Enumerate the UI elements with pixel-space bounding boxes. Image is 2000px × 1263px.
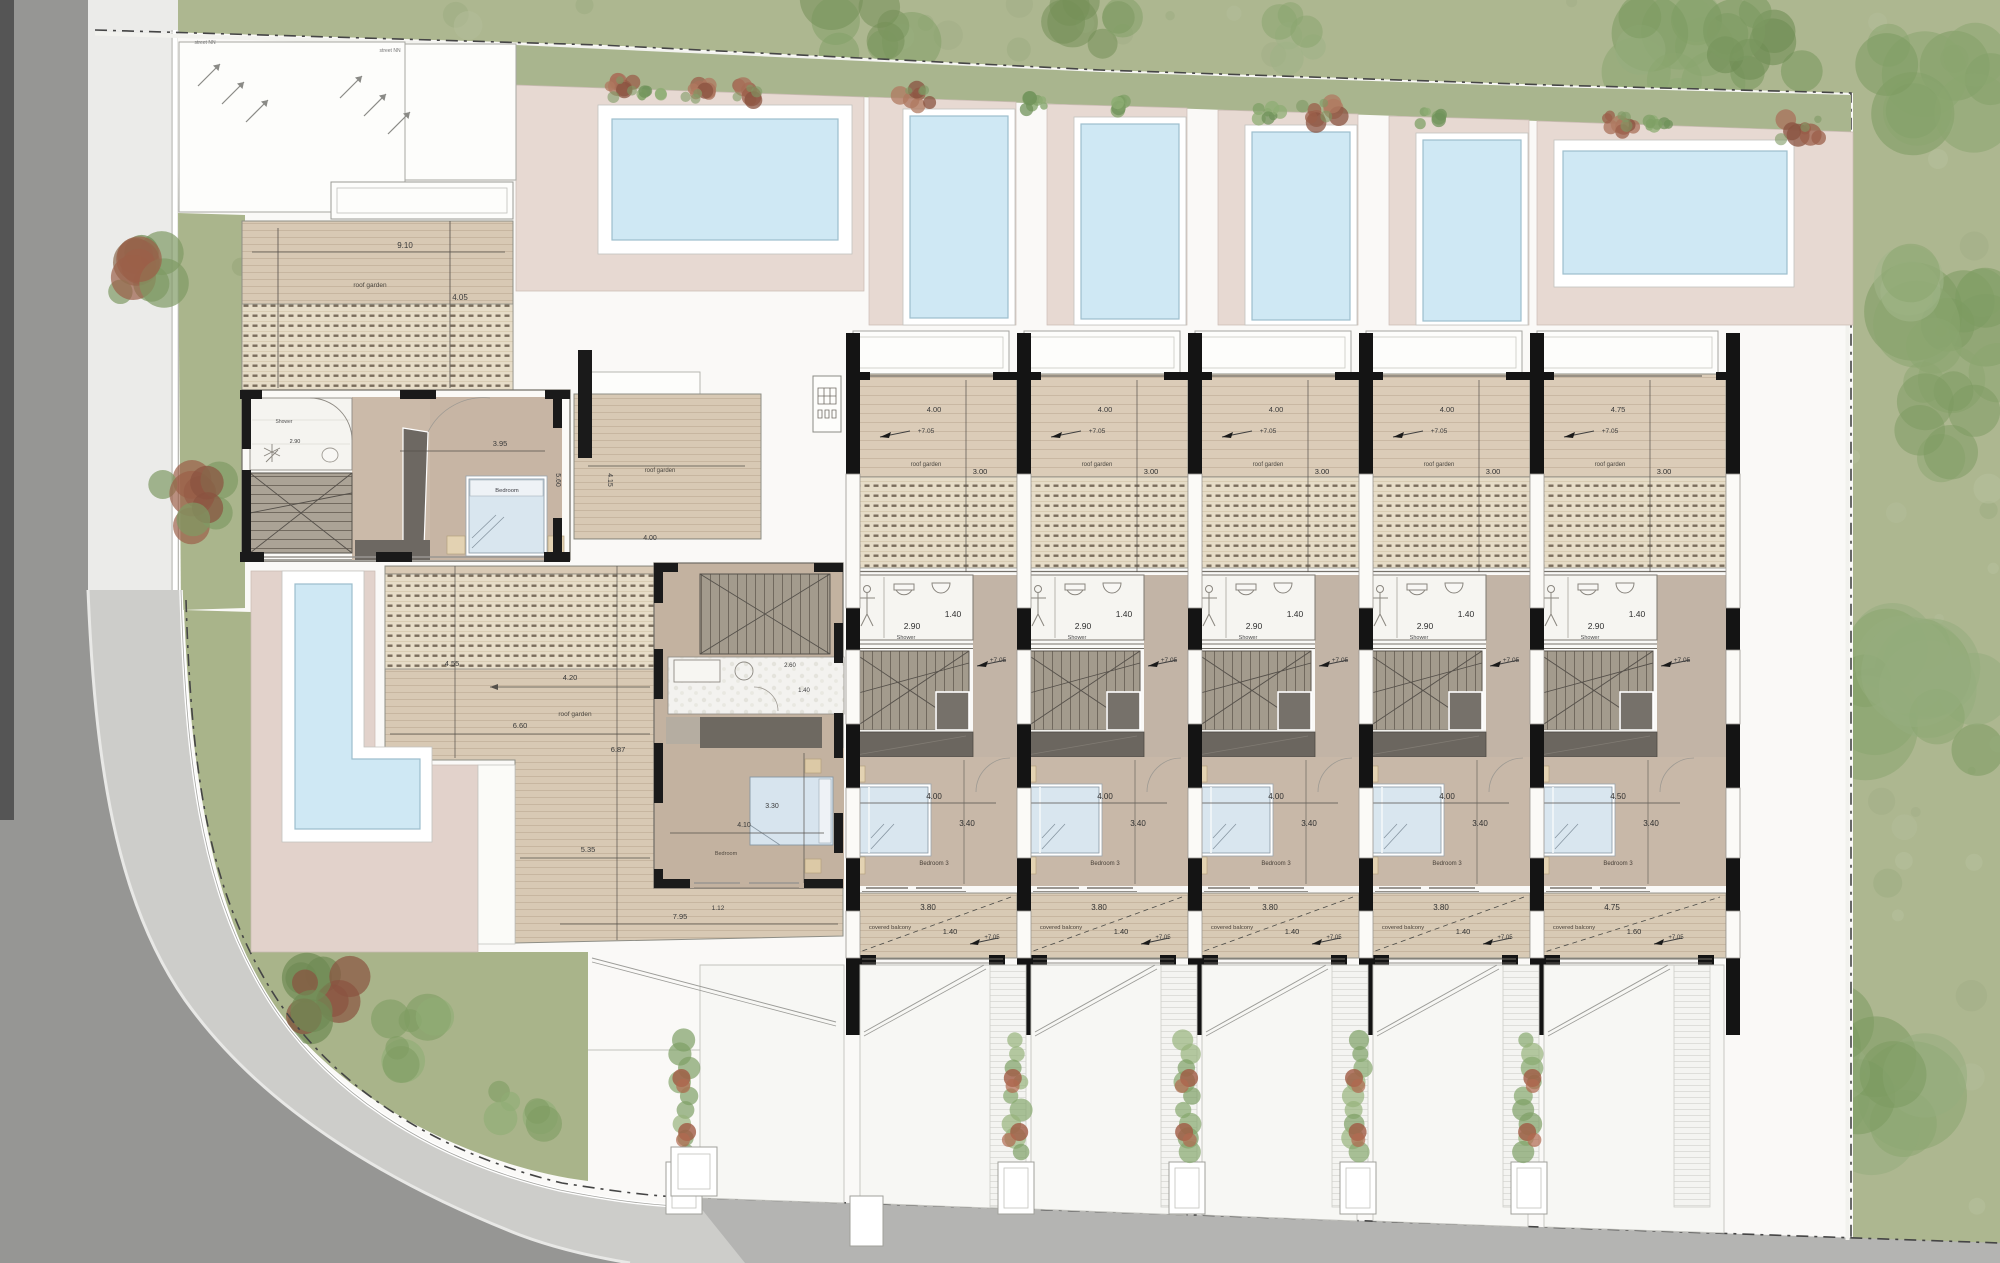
svg-text:6.87: 6.87: [611, 745, 626, 754]
svg-text:4.05: 4.05: [452, 293, 468, 302]
svg-text:Bedroom 3: Bedroom 3: [1603, 861, 1633, 867]
svg-text:Shower: Shower: [1581, 635, 1600, 641]
svg-text:covered balcony: covered balcony: [1553, 925, 1595, 931]
svg-text:1.40: 1.40: [945, 609, 962, 619]
svg-text:Shower: Shower: [1410, 635, 1429, 641]
svg-text:covered balcony: covered balcony: [1040, 925, 1082, 931]
svg-text:3.95: 3.95: [493, 439, 508, 448]
svg-text:3.40: 3.40: [1472, 819, 1488, 828]
svg-text:Shower: Shower: [897, 635, 916, 641]
svg-text:3.00: 3.00: [973, 467, 988, 476]
svg-text:4.55: 4.55: [445, 659, 460, 668]
svg-text:7.95: 7.95: [673, 912, 688, 921]
svg-text:+7.05: +7.05: [1089, 428, 1106, 435]
svg-text:3.30: 3.30: [765, 803, 779, 810]
svg-text:2.90: 2.90: [1417, 621, 1434, 631]
svg-text:+7.05: +7.05: [1602, 428, 1619, 435]
svg-text:4.15: 4.15: [606, 473, 613, 487]
svg-text:3.80: 3.80: [1433, 903, 1449, 912]
svg-text:2.90: 2.90: [904, 621, 921, 631]
svg-text:Shower: Shower: [276, 419, 293, 425]
svg-text:3.40: 3.40: [959, 819, 975, 828]
svg-text:1.40: 1.40: [1456, 927, 1471, 936]
svg-text:4.00: 4.00: [643, 535, 657, 542]
svg-text:5.60: 5.60: [554, 473, 561, 487]
svg-text:2.90: 2.90: [1246, 621, 1263, 631]
svg-text:2.90: 2.90: [1075, 621, 1092, 631]
svg-text:4.00: 4.00: [1439, 792, 1455, 801]
svg-text:street NN: street NN: [194, 40, 216, 46]
svg-text:Bedroom: Bedroom: [715, 851, 738, 857]
svg-text:roof garden: roof garden: [558, 711, 592, 718]
svg-text:2.90: 2.90: [290, 439, 301, 445]
svg-text:covered balcony: covered balcony: [1382, 925, 1424, 931]
svg-text:4.00: 4.00: [1098, 405, 1113, 414]
svg-text:+7.05: +7.05: [1431, 428, 1448, 435]
svg-text:roof garden: roof garden: [353, 282, 387, 289]
svg-text:1.40: 1.40: [1114, 927, 1129, 936]
svg-text:9.10: 9.10: [397, 241, 413, 250]
svg-text:4.75: 4.75: [1604, 903, 1620, 912]
svg-text:covered balcony: covered balcony: [869, 925, 911, 931]
svg-text:roof garden: roof garden: [1253, 462, 1284, 468]
svg-text:4.00: 4.00: [927, 405, 942, 414]
svg-text:4.10: 4.10: [737, 822, 751, 829]
svg-text:street NN: street NN: [379, 48, 401, 54]
svg-text:Bedroom: Bedroom: [495, 488, 519, 494]
svg-text:5.35: 5.35: [581, 845, 596, 854]
svg-text:1.40: 1.40: [1285, 927, 1300, 936]
svg-text:1.40: 1.40: [943, 927, 958, 936]
svg-text:3.80: 3.80: [1091, 903, 1107, 912]
svg-text:3.00: 3.00: [1144, 467, 1159, 476]
svg-text:1.40: 1.40: [1458, 609, 1475, 619]
svg-text:6.60: 6.60: [513, 721, 528, 730]
svg-text:Shower: Shower: [1068, 635, 1087, 641]
svg-text:3.80: 3.80: [920, 903, 936, 912]
svg-text:Bedroom 3: Bedroom 3: [1432, 861, 1462, 867]
svg-text:+7.05: +7.05: [1260, 428, 1277, 435]
svg-text:1.40: 1.40: [1116, 609, 1133, 619]
svg-text:roof garden: roof garden: [1595, 462, 1626, 468]
svg-text:Bedroom 3: Bedroom 3: [1090, 861, 1120, 867]
svg-text:Bedroom 3: Bedroom 3: [1261, 861, 1291, 867]
svg-text:1.12: 1.12: [712, 905, 725, 912]
svg-text:4.20: 4.20: [563, 673, 578, 682]
svg-text:roof garden: roof garden: [1424, 462, 1455, 468]
svg-text:4.00: 4.00: [1269, 405, 1284, 414]
svg-text:Shower: Shower: [1239, 635, 1258, 641]
svg-text:3.00: 3.00: [1657, 467, 1672, 476]
svg-text:3.40: 3.40: [1643, 819, 1659, 828]
svg-text:3.40: 3.40: [1301, 819, 1317, 828]
svg-text:4.00: 4.00: [1097, 792, 1113, 801]
svg-text:+7.05: +7.05: [918, 428, 935, 435]
svg-text:4.50: 4.50: [1610, 792, 1626, 801]
svg-text:1.60: 1.60: [1627, 927, 1642, 936]
svg-text:3.40: 3.40: [1130, 819, 1146, 828]
svg-text:3.00: 3.00: [1486, 467, 1501, 476]
svg-text:roof garden: roof garden: [645, 468, 676, 474]
svg-text:4.00: 4.00: [926, 792, 942, 801]
svg-text:roof garden: roof garden: [1082, 462, 1113, 468]
svg-text:2.60: 2.60: [784, 663, 796, 669]
svg-text:Bedroom 3: Bedroom 3: [919, 861, 949, 867]
svg-text:4.75: 4.75: [1611, 405, 1626, 414]
svg-text:1.40: 1.40: [1629, 609, 1646, 619]
svg-text:covered balcony: covered balcony: [1211, 925, 1253, 931]
svg-text:4.00: 4.00: [1440, 405, 1455, 414]
svg-text:3.80: 3.80: [1262, 903, 1278, 912]
svg-text:2.90: 2.90: [1588, 621, 1605, 631]
svg-text:1.40: 1.40: [798, 688, 810, 694]
svg-text:3.00: 3.00: [1315, 467, 1330, 476]
svg-text:4.00: 4.00: [1268, 792, 1284, 801]
svg-text:roof garden: roof garden: [911, 462, 942, 468]
svg-text:1.40: 1.40: [1287, 609, 1304, 619]
